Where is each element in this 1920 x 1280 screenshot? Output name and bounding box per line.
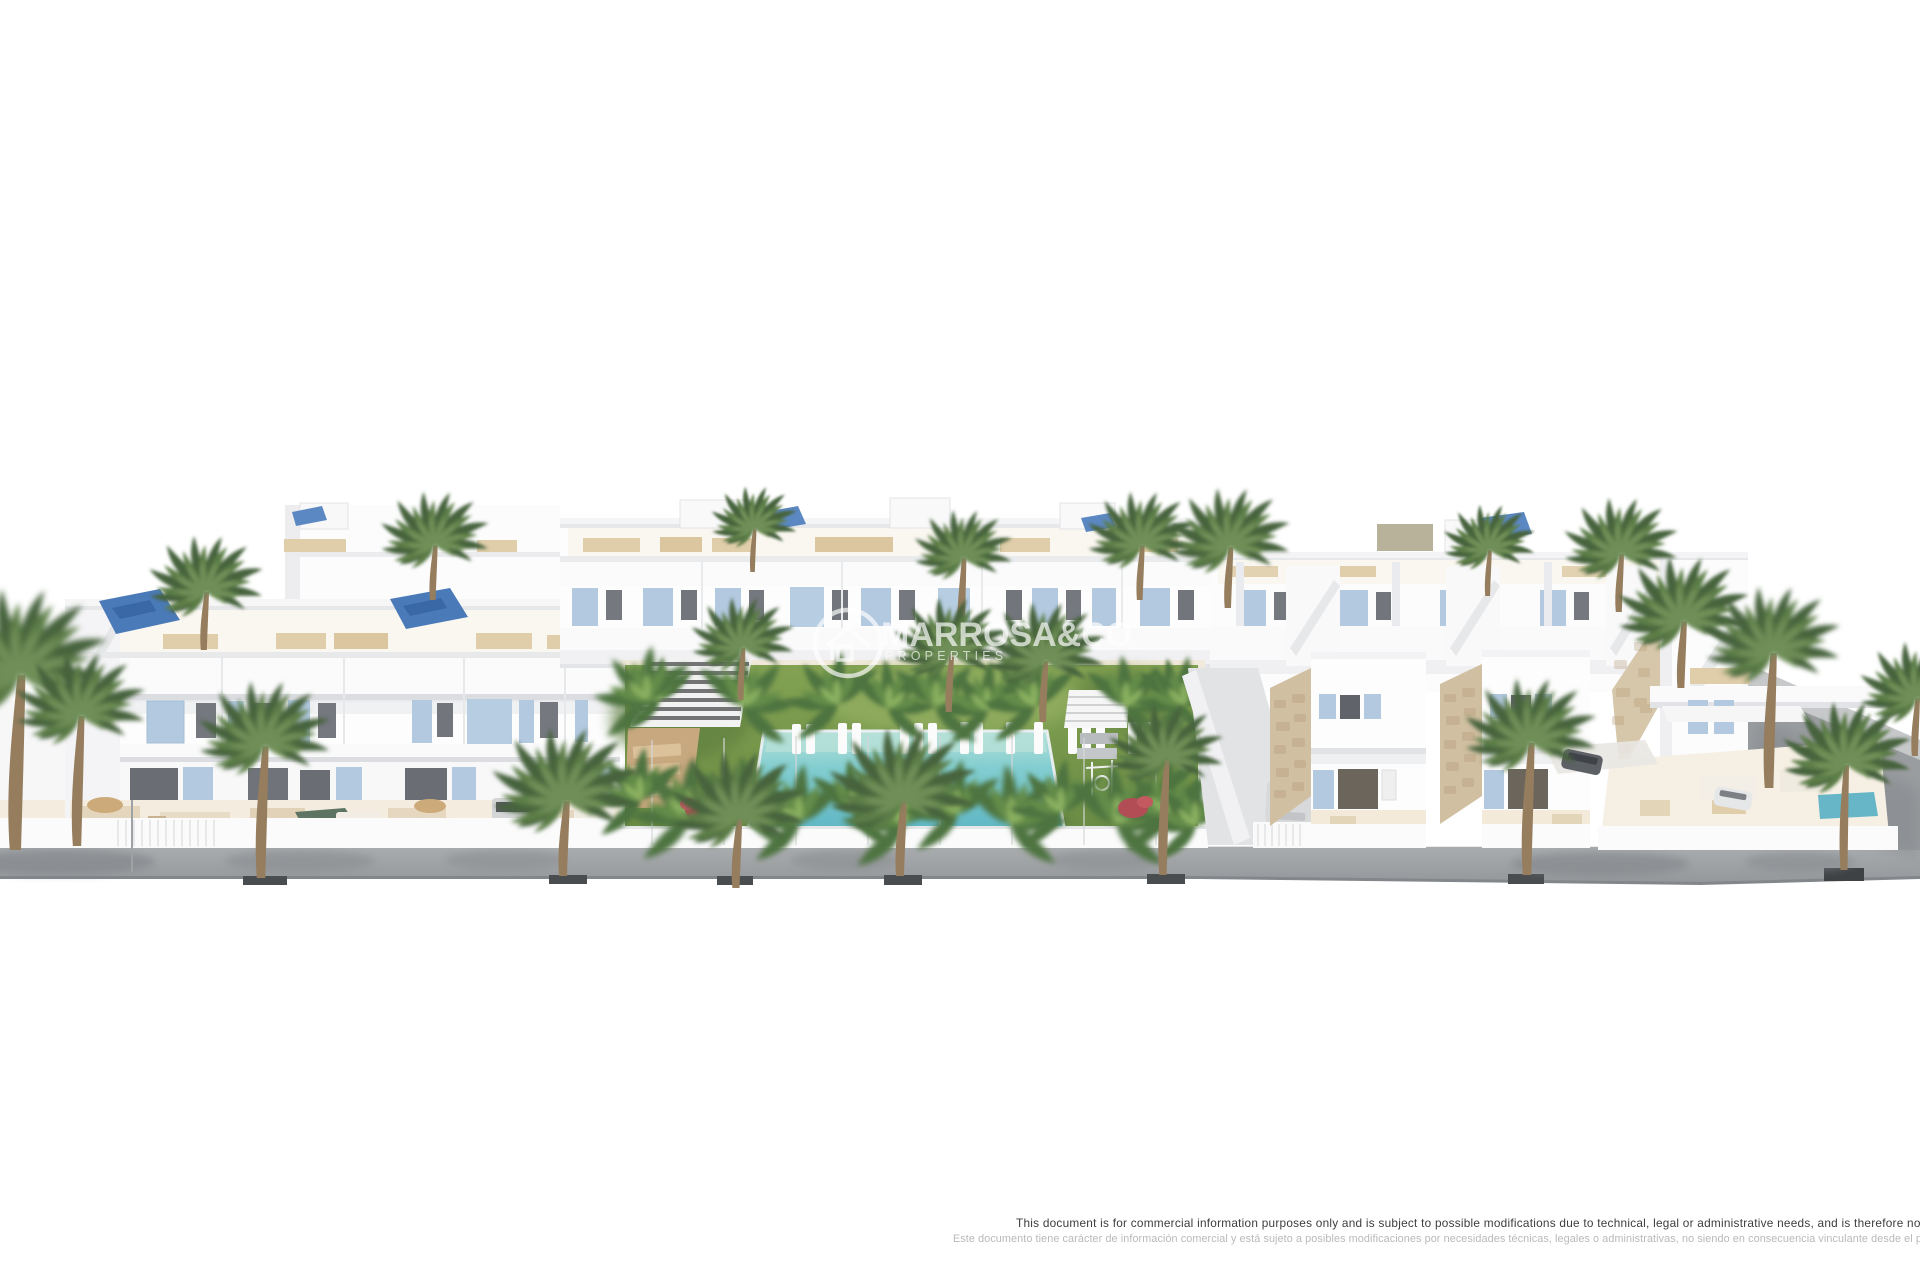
svg-text:PROPERTIES: PROPERTIES (885, 649, 1007, 663)
